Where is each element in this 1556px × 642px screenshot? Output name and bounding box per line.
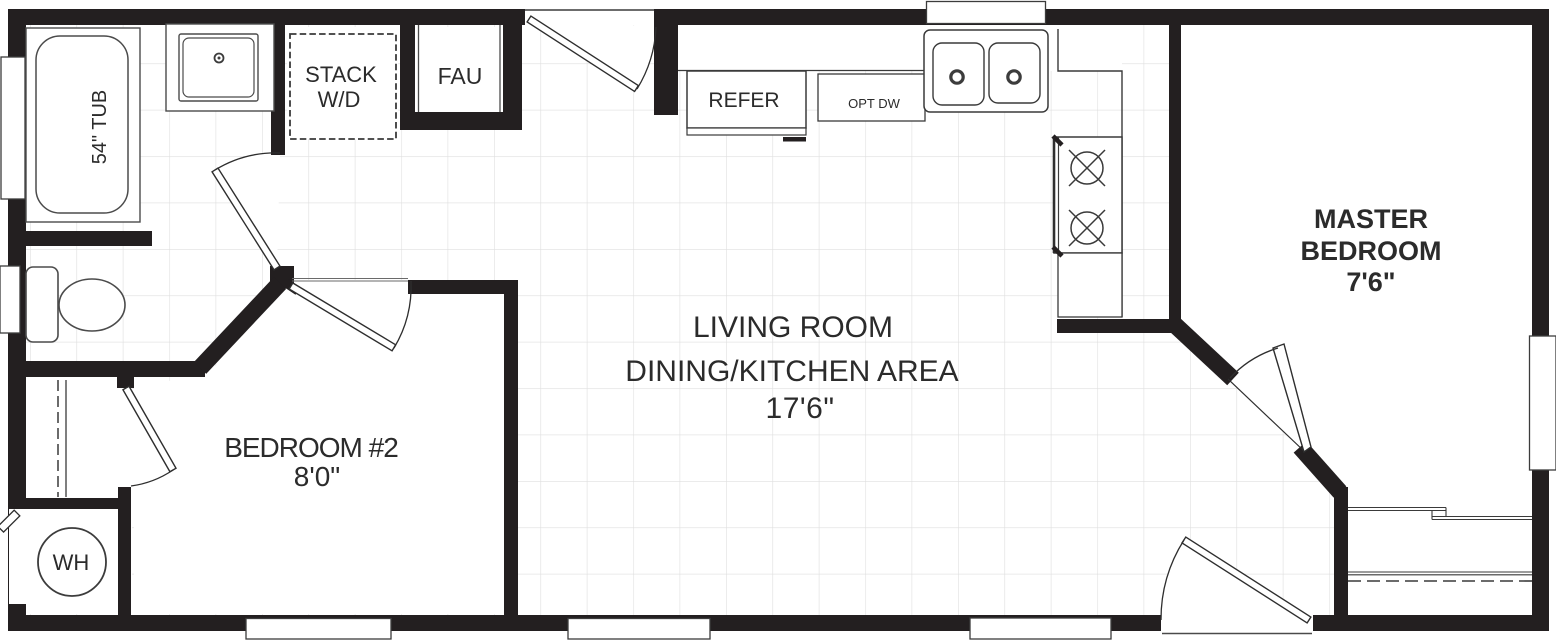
svg-text:REFER: REFER: [708, 89, 779, 112]
svg-text:OPT DW: OPT DW: [848, 96, 900, 111]
svg-text:LIVING ROOM: LIVING ROOM: [693, 311, 893, 344]
svg-text:BEDROOM: BEDROOM: [1301, 236, 1442, 266]
svg-text:17'6": 17'6": [766, 392, 835, 425]
svg-text:7'6": 7'6": [1346, 267, 1395, 297]
svg-text:BEDROOM #2: BEDROOM #2: [224, 432, 398, 463]
svg-text:W/D: W/D: [318, 87, 361, 112]
svg-text:STACK: STACK: [305, 62, 377, 87]
svg-text:8'0": 8'0": [294, 461, 340, 492]
svg-text:54" TUB: 54" TUB: [89, 90, 111, 165]
svg-text:DINING/KITCHEN AREA: DINING/KITCHEN AREA: [625, 355, 958, 388]
svg-text:WH: WH: [53, 550, 90, 575]
svg-text:FAU: FAU: [438, 63, 483, 89]
svg-text:MASTER: MASTER: [1314, 204, 1428, 234]
